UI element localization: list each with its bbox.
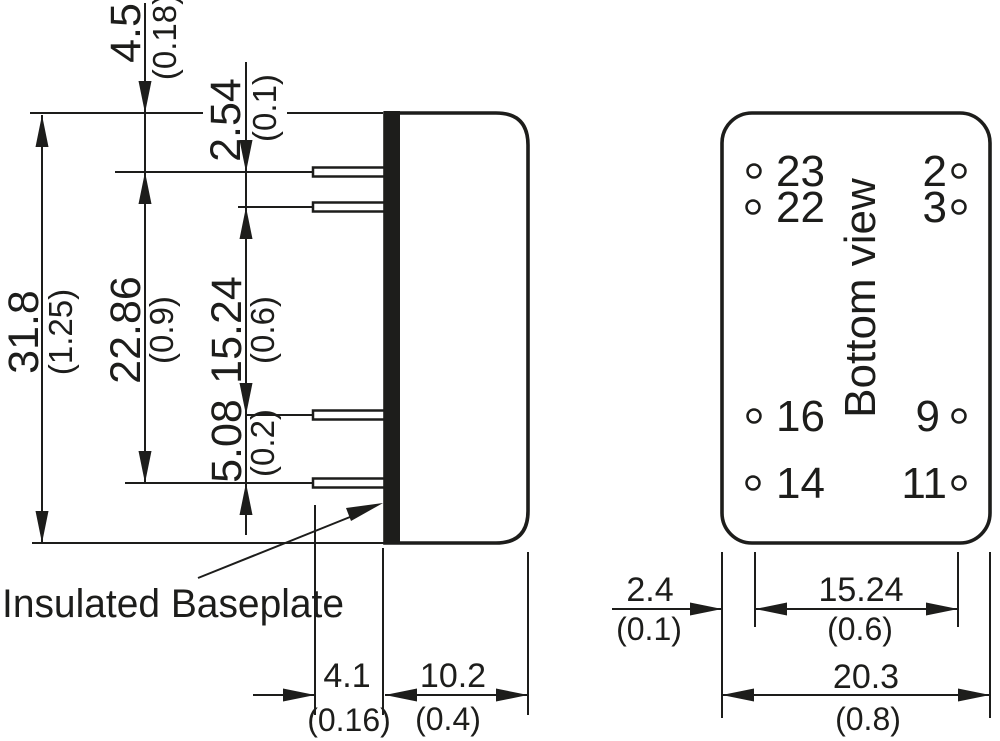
- pin-number-9: 9: [916, 392, 940, 441]
- side-pin-row-3: [313, 411, 385, 420]
- insulated-baseplate: [384, 111, 400, 543]
- dim-body-depth-inch: (0.4): [415, 701, 481, 737]
- dim-pin-length-mm: 4.1: [323, 657, 370, 695]
- pin-number-3: 3: [923, 183, 947, 232]
- bottom-view-dimension-labels: 2.4 (0.1) 15.24 (0.6) 20.3 (0.8): [616, 571, 903, 737]
- arrowhead: [722, 689, 754, 702]
- leader-arrowhead: [346, 503, 383, 521]
- pin-number-11: 11: [901, 459, 947, 508]
- dim-body-width-mm: 20.3: [833, 658, 899, 696]
- side-pin-row-4: [313, 479, 385, 488]
- side-pin-row-1: [313, 168, 385, 177]
- dim-top-to-pin-inch: (0.18): [146, 0, 183, 80]
- arrowhead: [690, 603, 722, 616]
- dim-pin-gap-bottom-inch: (0.2): [244, 409, 281, 477]
- dim-pin-gap-top-mm: 2.54: [202, 78, 250, 162]
- arrowhead: [755, 603, 787, 616]
- dim-pin-gap-mid-inch: (0.6): [244, 296, 281, 364]
- dim-edge-to-pin-inch: (0.1): [616, 611, 682, 647]
- module-body-outline: [385, 113, 528, 543]
- arrowhead: [139, 172, 152, 204]
- bottom-view-label: Bottom view: [836, 178, 885, 418]
- arrowhead: [385, 689, 417, 702]
- side-pin-row-2: [313, 203, 385, 212]
- arrowhead: [283, 689, 315, 702]
- technical-drawing-page: 4.5 (0.18) 2.54 (0.1) 31.8 (1.25) 22.86 …: [0, 0, 1000, 741]
- arrowhead: [139, 451, 152, 483]
- dim-edge-to-pin-mm: 2.4: [626, 571, 673, 609]
- dim-body-depth-mm: 10.2: [420, 657, 486, 695]
- arrowhead: [240, 207, 253, 239]
- arrowhead: [958, 689, 990, 702]
- package-dimension-drawing: 4.5 (0.18) 2.54 (0.1) 31.8 (1.25) 22.86 …: [0, 0, 1000, 741]
- arrowhead: [36, 115, 49, 147]
- pin-number-22: 22: [776, 183, 825, 232]
- arrowhead: [36, 511, 49, 543]
- arrowhead: [496, 689, 528, 702]
- dim-pin-gap-top-inch: (0.1): [246, 74, 283, 142]
- insulated-baseplate-label: Insulated Baseplate: [2, 582, 344, 626]
- dim-pin-row-pitch-mm: 15.24: [818, 571, 903, 609]
- dim-pin-length-inch: (0.16): [307, 702, 391, 738]
- dim-body-height-mm: 31.8: [0, 290, 48, 374]
- dim-body-height-inch: (1.25): [42, 289, 79, 375]
- dim-pin-row-pitch-inch: (0.6): [827, 611, 893, 647]
- dim-pin-span-inch: (0.9): [143, 296, 180, 364]
- dim-top-to-pin-mm: 4.5: [102, 3, 150, 63]
- arrowhead: [139, 81, 152, 113]
- baseplate-callout: Insulated Baseplate: [2, 503, 383, 626]
- leader-line: [198, 515, 355, 578]
- side-view: [313, 111, 528, 543]
- dim-body-width-inch: (0.8): [835, 701, 901, 737]
- arrowhead: [240, 483, 253, 515]
- pin-number-14: 14: [776, 459, 825, 508]
- bottom-view: Bottom view 23 22 2 3 16 14 9 11: [722, 113, 990, 543]
- pin-number-16: 16: [776, 392, 825, 441]
- arrowhead: [926, 603, 958, 616]
